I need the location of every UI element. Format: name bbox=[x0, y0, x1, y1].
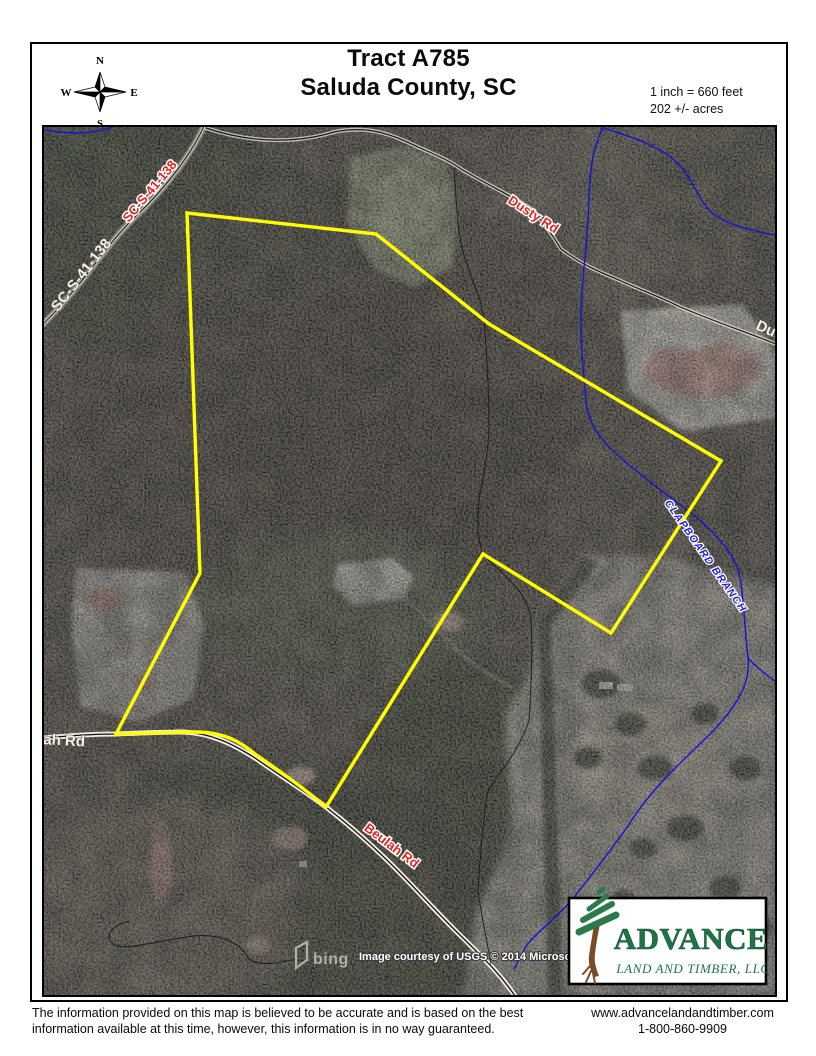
acreage-text: 202 +/- acres bbox=[650, 101, 743, 118]
scale-text: 1 inch = 660 feet bbox=[650, 84, 743, 101]
disclaimer-line-1: The information provided on this map is … bbox=[32, 1005, 552, 1021]
map-document-page: Tract A785 Saluda County, SC 1 inch = 66… bbox=[0, 0, 816, 1056]
compass-north-label: N bbox=[96, 55, 104, 67]
compass-west-label: W bbox=[61, 87, 72, 99]
compass-east-label: E bbox=[130, 87, 137, 99]
bing-logo-text: bing bbox=[313, 951, 349, 968]
scale-block: 1 inch = 660 feet 202 +/- acres bbox=[650, 84, 743, 118]
compass-star-icon bbox=[74, 72, 126, 112]
aerial-map: SC-S-41-138 SC-S-41-138 Dusty Rd Dusty C… bbox=[43, 126, 776, 996]
footer-website: www.advancelandandtimber.com bbox=[575, 1005, 790, 1021]
footer-contact: www.advancelandandtimber.com 1-800-860-9… bbox=[575, 1005, 790, 1037]
footer-phone: 1-800-860-9909 bbox=[575, 1021, 790, 1037]
advance-logo: ADVANCE LAND AND TIMBER, LLC bbox=[569, 889, 770, 984]
logo-subtitle-text: LAND AND TIMBER, LLC bbox=[615, 961, 769, 976]
logo-name-text: ADVANCE bbox=[614, 921, 769, 956]
title-tract: Tract A785 bbox=[42, 44, 775, 73]
road-beulah-ghost-label: lah Rd bbox=[43, 731, 85, 750]
map-canvas: SC-S-41-138 SC-S-41-138 Dusty Rd Dusty C… bbox=[42, 125, 777, 997]
compass-rose: N E S W bbox=[55, 50, 147, 132]
disclaimer-line-2: information available at this time, howe… bbox=[32, 1021, 552, 1037]
footer-disclaimer: The information provided on this map is … bbox=[32, 1005, 552, 1037]
